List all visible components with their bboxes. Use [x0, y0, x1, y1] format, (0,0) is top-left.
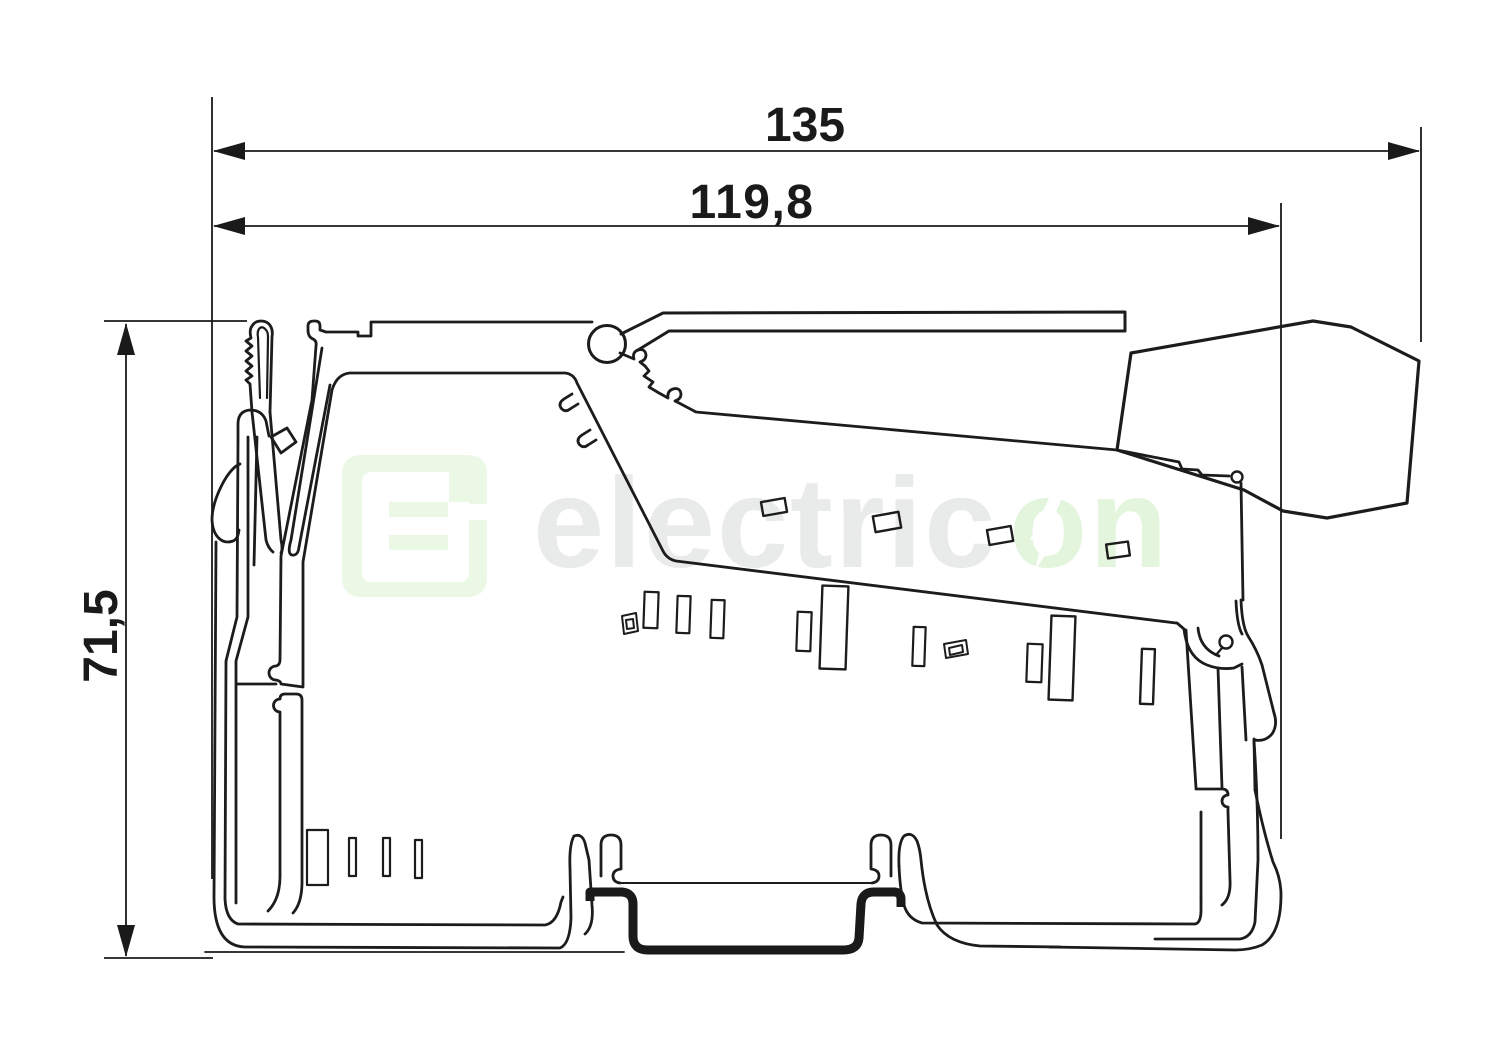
svg-text:on: on [1009, 452, 1169, 595]
svg-text:119,8: 119,8 [690, 176, 815, 229]
svg-text:electric: electric [533, 452, 997, 595]
svg-text:71,5: 71,5 [75, 589, 128, 682]
svg-text:135: 135 [765, 99, 845, 152]
